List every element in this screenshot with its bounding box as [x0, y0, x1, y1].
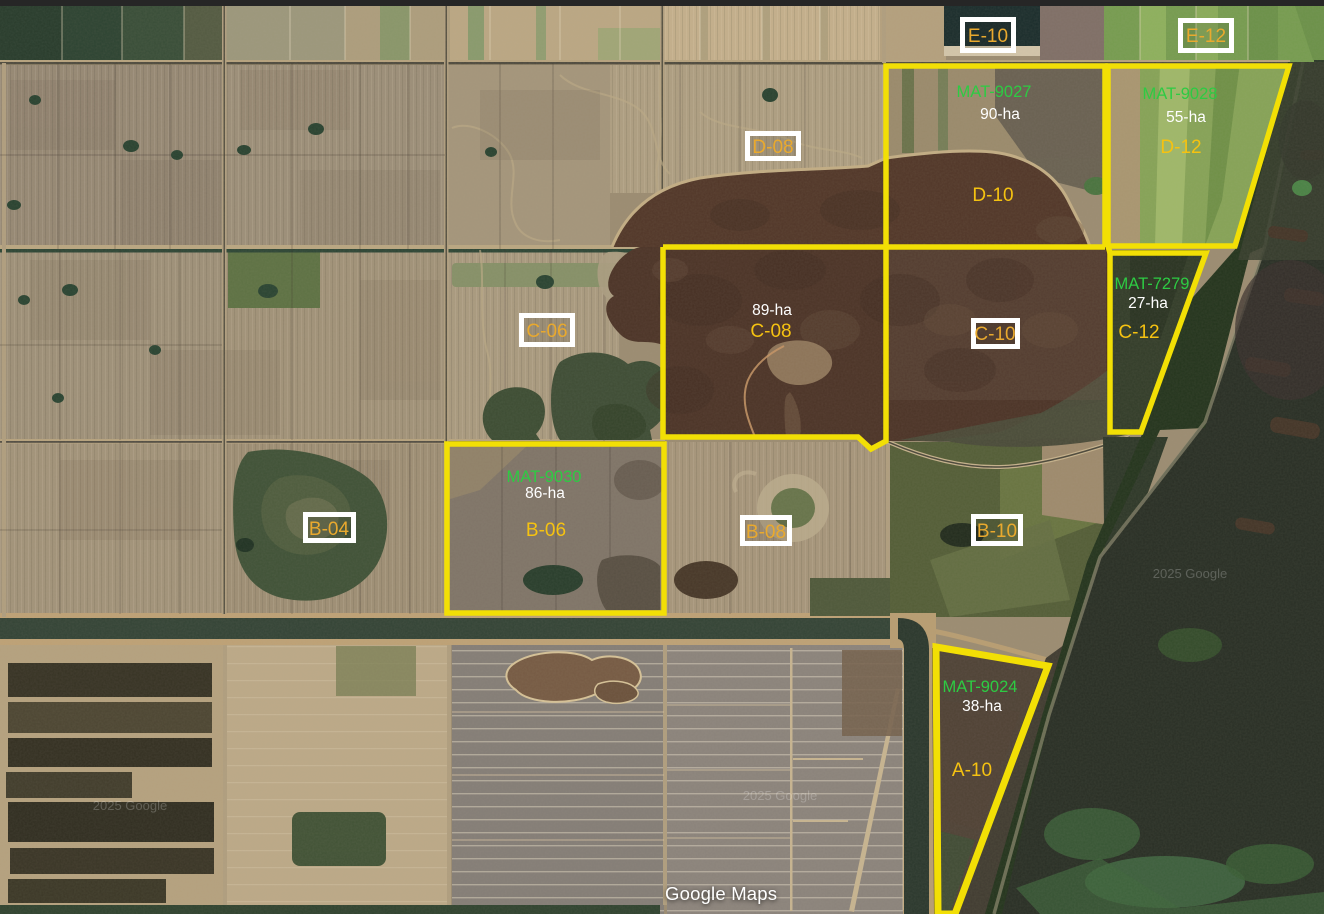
svg-text:C-10: C-10 — [974, 324, 1015, 345]
svg-text:89-ha: 89-ha — [752, 302, 792, 319]
svg-text:B-06: B-06 — [526, 520, 566, 541]
svg-text:2025 Google: 2025 Google — [743, 788, 817, 803]
svg-text:D-12: D-12 — [1160, 137, 1201, 158]
svg-text:D-10: D-10 — [972, 185, 1013, 206]
svg-text:Google Maps: Google Maps — [665, 883, 777, 904]
svg-text:MAT-9027: MAT-9027 — [957, 83, 1032, 101]
svg-text:2025 Google: 2025 Google — [1153, 566, 1227, 581]
svg-text:27-ha: 27-ha — [1128, 295, 1168, 312]
svg-text:90-ha: 90-ha — [980, 106, 1020, 123]
svg-text:C-06: C-06 — [526, 321, 567, 342]
svg-text:E-12: E-12 — [1186, 26, 1226, 47]
svg-text:MAT-9024: MAT-9024 — [943, 678, 1018, 696]
svg-text:MAT-9030: MAT-9030 — [507, 468, 582, 486]
svg-text:C-08: C-08 — [750, 321, 791, 342]
svg-text:E-10: E-10 — [968, 26, 1008, 47]
svg-text:2025 Google: 2025 Google — [93, 798, 167, 813]
svg-text:A-10: A-10 — [952, 760, 992, 781]
svg-text:D-08: D-08 — [752, 137, 793, 158]
svg-text:C-12: C-12 — [1118, 322, 1159, 343]
svg-text:B-08: B-08 — [746, 522, 786, 543]
svg-text:MAT-9028: MAT-9028 — [1143, 85, 1218, 103]
svg-text:MAT-7279: MAT-7279 — [1115, 275, 1190, 293]
svg-text:B-10: B-10 — [977, 521, 1017, 542]
svg-text:86-ha: 86-ha — [525, 485, 565, 502]
svg-text:38-ha: 38-ha — [962, 698, 1002, 715]
svg-text:55-ha: 55-ha — [1166, 109, 1206, 126]
svg-text:B-04: B-04 — [309, 519, 350, 540]
